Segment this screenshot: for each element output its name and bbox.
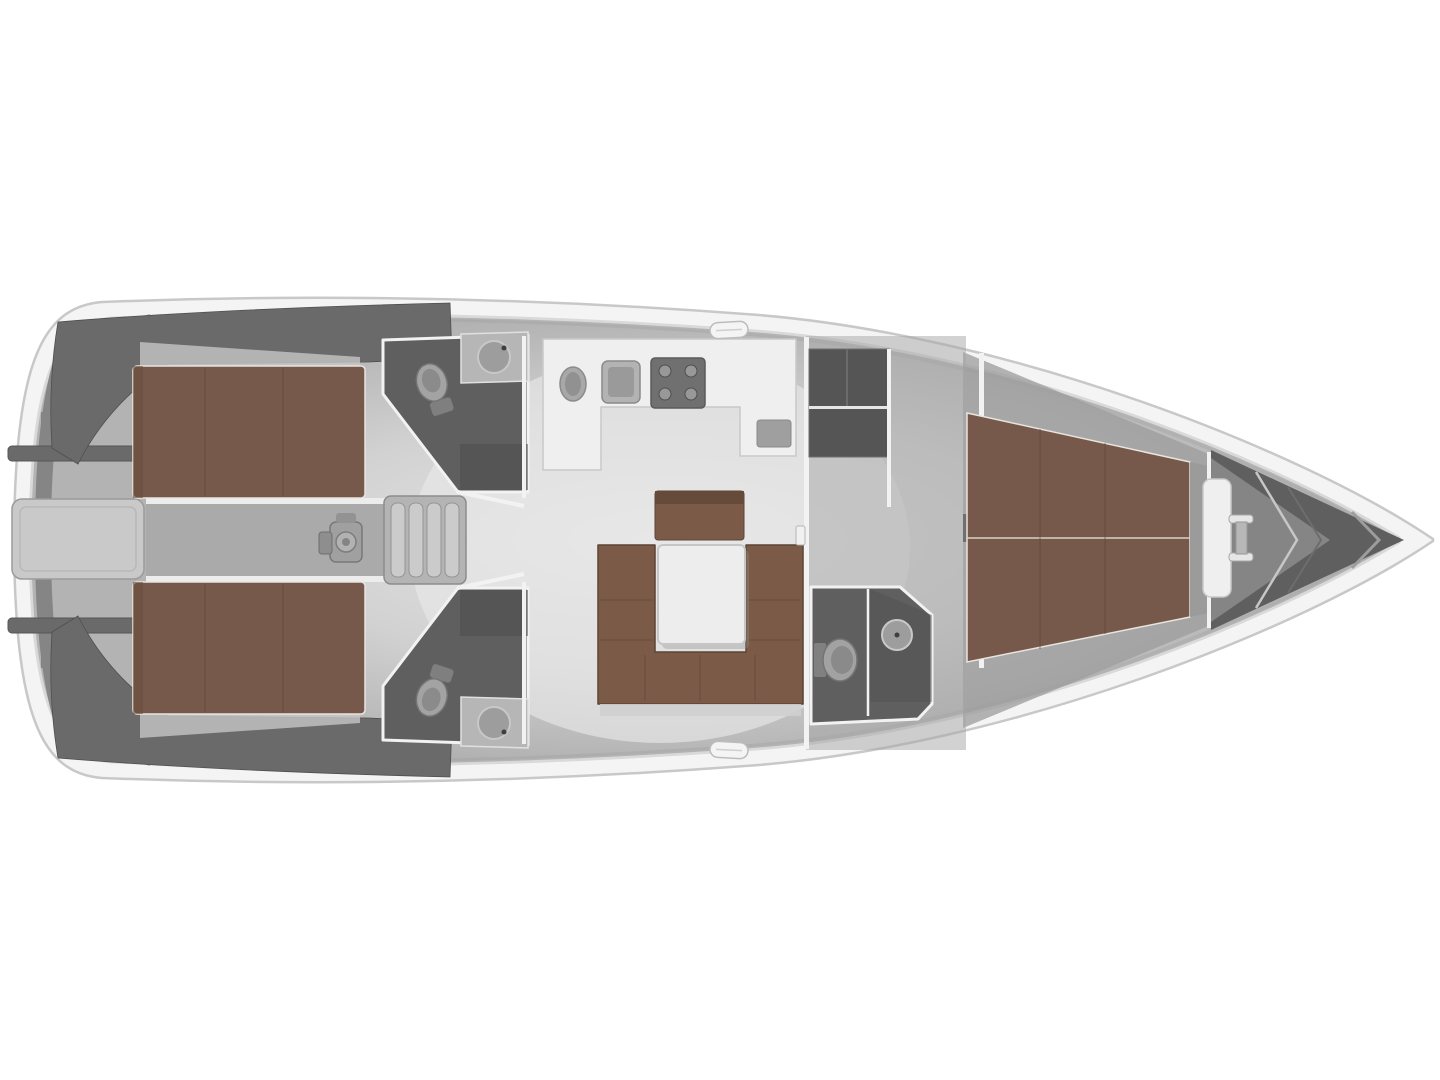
galley-sink-oval-basin xyxy=(565,372,581,396)
locker-divider xyxy=(846,349,848,406)
pedestal-throttle xyxy=(319,532,332,554)
shower-floor xyxy=(460,444,528,490)
galley-sink-square-basin xyxy=(608,367,634,397)
salon-bench-back xyxy=(655,491,744,504)
anchor-step xyxy=(1203,479,1231,597)
washbasin-icon xyxy=(478,341,510,373)
berth-headboard xyxy=(133,366,143,498)
step-bar xyxy=(409,503,423,577)
step-bar xyxy=(427,503,441,577)
berth-headboard xyxy=(133,582,143,714)
chart-table-inset xyxy=(757,420,791,447)
step-bar xyxy=(445,503,459,577)
faucet-dot xyxy=(895,633,900,638)
deck-plan-svg xyxy=(0,0,1440,1080)
aft-cabin-port xyxy=(133,366,365,498)
locker-shelf-line xyxy=(809,406,889,409)
wardrobe-locker xyxy=(809,349,889,457)
shower-floor xyxy=(460,590,528,636)
stove-burner xyxy=(659,365,671,377)
pedestal-console xyxy=(336,513,356,523)
companionway-steps xyxy=(384,496,466,584)
cockpit-edge-top xyxy=(146,498,388,504)
yacht-floorplan-canvas xyxy=(0,0,1440,1080)
step-bar xyxy=(391,503,405,577)
deck-hatch-top xyxy=(710,321,749,339)
washbasin-icon xyxy=(478,707,510,739)
salon-table xyxy=(658,545,745,644)
swim-platform xyxy=(12,499,144,579)
aft-berth-starboard xyxy=(133,582,365,714)
toilet-seat xyxy=(831,646,853,674)
stove-burner xyxy=(685,388,697,400)
bulkhead-wall xyxy=(522,582,526,744)
cockpit xyxy=(146,496,466,584)
stove-burner xyxy=(659,388,671,400)
windlass-drum xyxy=(1236,522,1247,554)
door-handle xyxy=(796,526,805,545)
stove-burner xyxy=(685,365,697,377)
aft-berth-port xyxy=(133,366,365,498)
steering-wheel-hub xyxy=(342,538,350,546)
stove-icon xyxy=(651,358,705,408)
cockpit-edge-bottom xyxy=(146,576,388,582)
wardrobe-wall xyxy=(887,349,891,507)
toilet-icon xyxy=(814,639,857,681)
bulkhead-wall xyxy=(522,336,526,498)
faucet-dot xyxy=(502,730,507,735)
deck-hatch-bottom xyxy=(710,741,749,759)
sofa-base-step xyxy=(600,704,801,716)
aft-cabin-starboard xyxy=(133,582,365,714)
forward-head xyxy=(811,587,932,724)
faucet-dot xyxy=(502,346,507,351)
